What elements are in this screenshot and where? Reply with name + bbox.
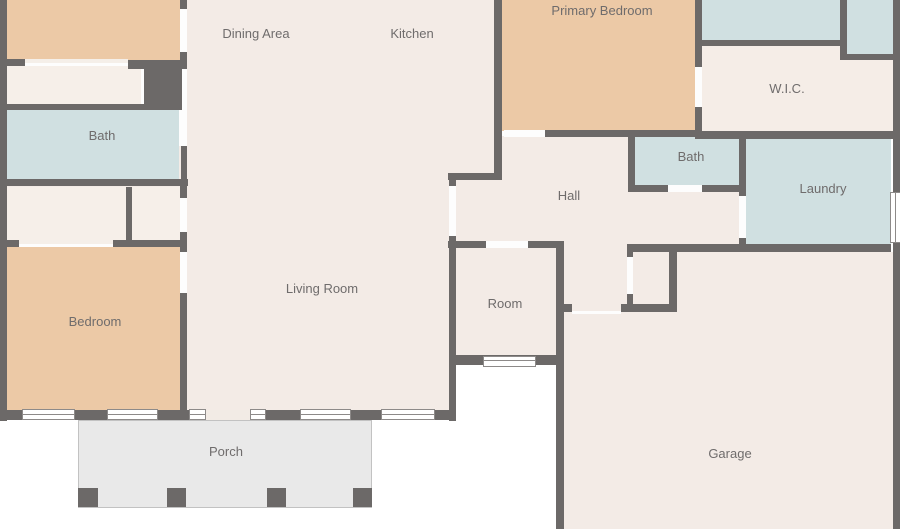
- svg-text:Bath: Bath: [89, 128, 116, 143]
- svg-text:Primary Bedroom: Primary Bedroom: [551, 3, 652, 18]
- svg-text:Laundry: Laundry: [800, 181, 847, 196]
- svg-text:Kitchen: Kitchen: [390, 26, 433, 41]
- svg-text:Garage: Garage: [708, 446, 751, 461]
- svg-text:W.I.C.: W.I.C.: [769, 81, 804, 96]
- svg-text:Bath: Bath: [678, 149, 705, 164]
- svg-text:Porch: Porch: [209, 444, 243, 459]
- svg-text:Room: Room: [488, 296, 523, 311]
- svg-text:Dining Area: Dining Area: [222, 26, 290, 41]
- svg-text:Living Room: Living Room: [286, 281, 358, 296]
- svg-text:Hall: Hall: [558, 188, 581, 203]
- svg-text:Bedroom: Bedroom: [69, 314, 122, 329]
